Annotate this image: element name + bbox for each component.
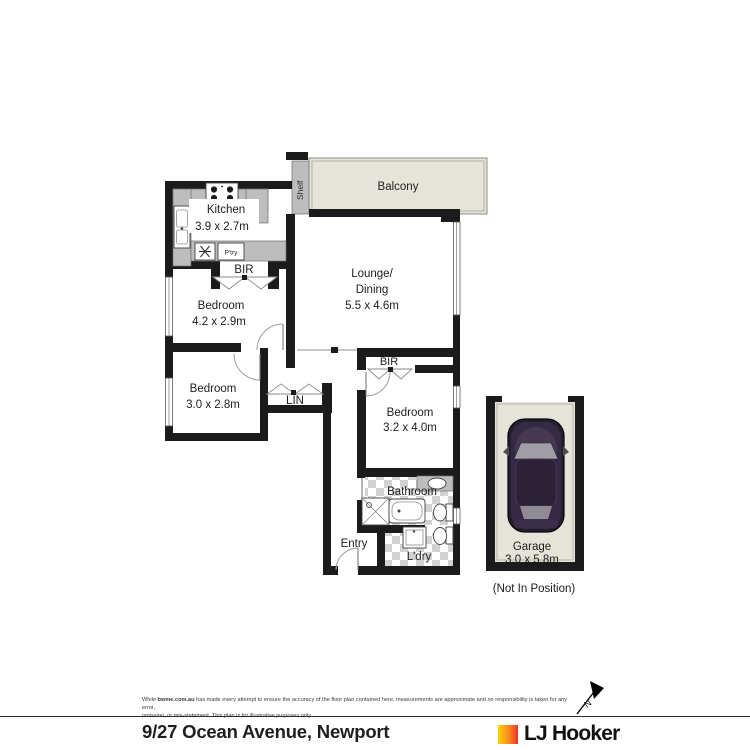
balcony: Balcony (309, 158, 487, 214)
lounge-dims: 5.5 x 4.6m (345, 300, 399, 312)
garage-note: (Not In Position) (493, 583, 576, 595)
pantry-label: P'try (225, 250, 239, 257)
lounge-label-line2: Dining (356, 284, 389, 296)
north-letter: N (582, 698, 593, 710)
bir1-label: BIR (234, 264, 253, 276)
linen-closet: LIN (267, 384, 323, 407)
north-arrow-icon: N (577, 681, 604, 714)
property-address: 9/27 Ocean Avenue, Newport (142, 721, 389, 743)
toilet-icon (434, 504, 454, 521)
disclaimer-line1: has made every attempt to ensure the acc… (142, 697, 567, 711)
floorplan-page: Balcony Shelf (0, 0, 750, 750)
garage-dims: 3.0 x 5.8m (505, 554, 559, 566)
kitchen-label: Kitchen (207, 204, 245, 216)
kitchen-dims: 3.9 x 2.7m (195, 221, 249, 233)
balcony-label: Balcony (378, 181, 419, 193)
snowflake-icon (195, 243, 215, 260)
shelf-label: Shelf (295, 180, 305, 200)
floor-plan-svg: Balcony Shelf (0, 0, 750, 750)
ljhooker-logo-mark-icon (498, 725, 518, 744)
footer-divider (0, 716, 750, 717)
shelf: Shelf (292, 161, 309, 214)
bedroom2-dims: 3.0 x 2.8m (186, 399, 240, 411)
disclaimer-prefix: While (142, 697, 158, 703)
lounge-label-line1: Lounge/ (351, 268, 393, 280)
bedroom1-label: Bedroom (198, 300, 245, 312)
doors (234, 324, 390, 570)
laundry-label: L'dry (407, 551, 432, 563)
bir2-label: BIR (380, 356, 398, 368)
car-top-view (503, 419, 569, 532)
bathroom-label: Bathroom (387, 486, 437, 498)
bathtub-icon (389, 499, 425, 523)
bedroom1-dims: 4.2 x 2.9m (192, 316, 246, 328)
entry-label: Entry (341, 538, 368, 550)
bathroom: Bathroom (362, 476, 453, 525)
brand-name: LJ Hooker (524, 722, 620, 746)
toilet-icon (434, 527, 454, 545)
laundry-tub-icon (403, 527, 426, 548)
bir-bedroom1: BIR (213, 264, 277, 289)
sink-icon (174, 206, 190, 248)
garage-label: Garage (513, 541, 551, 553)
bedroom2-label: Bedroom (190, 383, 237, 395)
shower-icon (362, 498, 389, 525)
bedroom3-label: Bedroom (387, 407, 434, 419)
pantry: P'try (218, 243, 244, 260)
disclaimer-site: bwme.com.au (158, 697, 195, 703)
bedroom3-dims: 3.2 x 4.0m (383, 422, 437, 434)
ljhooker-logo: LJ Hooker (498, 722, 620, 746)
kitchen: Kitchen 3.9 x 2.7m P'try (173, 183, 286, 266)
lin-label: LIN (286, 395, 304, 407)
